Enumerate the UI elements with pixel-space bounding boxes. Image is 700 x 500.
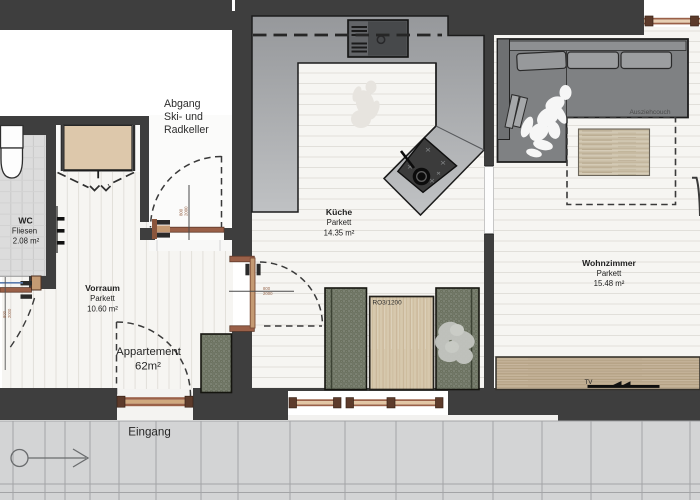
svg-text:Parkett: Parkett — [327, 218, 353, 227]
svg-text:Radkeller: Radkeller — [164, 124, 209, 136]
svg-text:2000: 2000 — [263, 291, 273, 296]
svg-text:Eingang: Eingang — [128, 426, 171, 439]
svg-text:TV: TV — [585, 379, 594, 386]
svg-text:Vorraum: Vorraum — [85, 283, 120, 293]
svg-text:2000: 2000 — [184, 206, 189, 216]
svg-text:2000: 2000 — [7, 308, 12, 318]
svg-text:2.08 m²: 2.08 m² — [13, 237, 40, 246]
svg-text:Abgang: Abgang — [164, 98, 201, 110]
svg-text:Ausziehcouch: Ausziehcouch — [629, 109, 670, 116]
svg-text:10.60 m²: 10.60 m² — [87, 305, 118, 314]
svg-text:Wohnzimmer: Wohnzimmer — [582, 258, 636, 268]
svg-text:Küche: Küche — [326, 207, 352, 217]
svg-text:Parkett: Parkett — [597, 269, 623, 278]
svg-text:15.48 m²: 15.48 m² — [594, 279, 625, 288]
svg-text:Ski- und: Ski- und — [164, 111, 203, 123]
svg-text:62m²: 62m² — [135, 361, 161, 373]
svg-text:Parkett: Parkett — [90, 294, 116, 303]
svg-text:14.35 m²: 14.35 m² — [324, 229, 355, 238]
svg-text:RO3/1200: RO3/1200 — [373, 300, 403, 307]
svg-text:WC: WC — [18, 216, 32, 226]
svg-text:Appartement: Appartement — [116, 346, 182, 358]
svg-text:Fliesen: Fliesen — [12, 227, 37, 236]
